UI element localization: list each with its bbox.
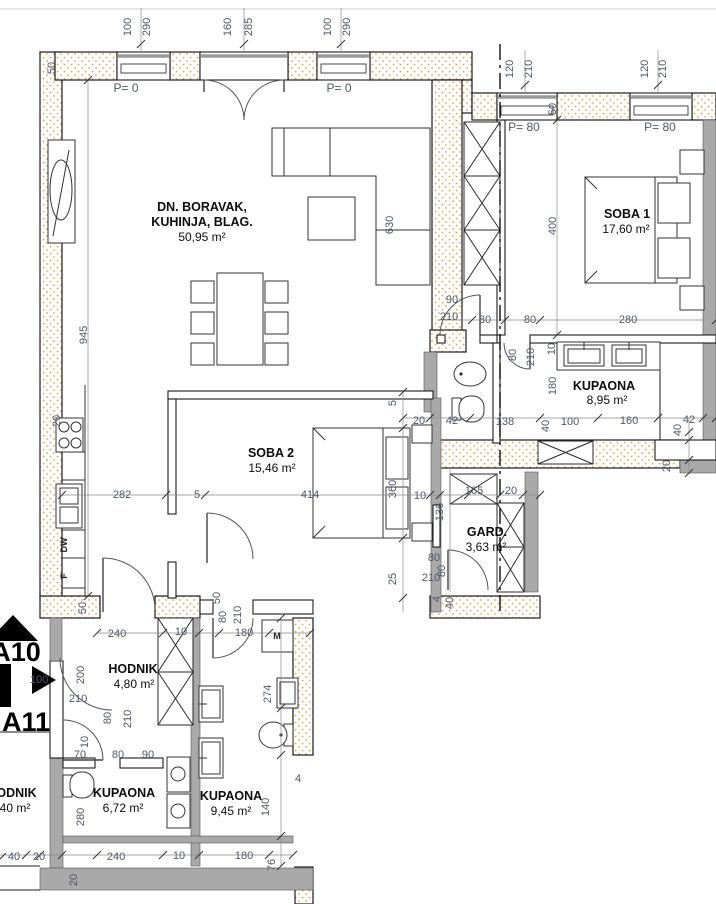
- dimension-label: 70: [74, 749, 86, 761]
- window-parapet-label: P= 80: [644, 120, 676, 134]
- dimension-label: 100: [561, 416, 579, 428]
- dimension-label: 180: [235, 627, 253, 639]
- dimension-label: 50: [77, 602, 89, 614]
- dimension-label: 80: [524, 314, 536, 326]
- dimension-label: 210: [122, 710, 134, 728]
- dimension-label: 290: [341, 18, 353, 36]
- dimension-label: 40: [672, 424, 684, 436]
- dimension-label: 10: [175, 626, 187, 638]
- dimension-label: 5: [194, 489, 200, 501]
- room-name-kupaona3: KUPAONA: [200, 789, 262, 803]
- dimension-label: 10: [414, 490, 426, 502]
- dimension-label: 180: [235, 850, 253, 862]
- dimension-label: 360: [387, 480, 399, 498]
- dimension-label: 20: [51, 415, 63, 427]
- dimension-label: 210: [69, 693, 87, 705]
- room-name-kupaona1: KUPAONA: [573, 379, 635, 393]
- dimension-label: 165: [465, 485, 483, 497]
- dimension-label: 160: [222, 18, 234, 36]
- room-name-hodnik1: HODNIK: [108, 662, 157, 676]
- dimension-label: 40: [444, 597, 456, 609]
- fixture-label: F: [59, 573, 69, 579]
- dimension-label: 414: [301, 489, 319, 501]
- plant: [48, 140, 75, 243]
- sink-kupaona2-top: [167, 757, 190, 792]
- dimension-label: 5: [387, 400, 399, 406]
- door-gard: [448, 550, 488, 590]
- dining-set: [191, 273, 288, 365]
- room-area-hodnik1: 4,80 m²: [114, 677, 155, 691]
- room-name-gard: GARD.: [467, 525, 507, 539]
- window-parapet-label: P= 0: [326, 81, 351, 95]
- dimension-label: 76: [266, 859, 278, 871]
- room-area-soba1: 17,60 m²: [602, 222, 649, 236]
- dimension-label: 100: [322, 18, 334, 36]
- window-living-right: [317, 52, 370, 80]
- dimension-label: 40: [540, 420, 552, 432]
- dimension-label: 210: [523, 60, 535, 78]
- fixture-label: M: [273, 631, 281, 641]
- dimension-label: 25: [387, 573, 399, 585]
- dimension-label: 280: [619, 314, 637, 326]
- bed-soba2: [313, 425, 432, 541]
- toilet-kupaona2: [63, 772, 94, 798]
- room-name-soba2: SOBA 2: [248, 446, 294, 460]
- dimension-label: 200: [75, 666, 87, 684]
- section-marker-a10: A10: [0, 637, 41, 667]
- stool-kupaona3: [277, 678, 298, 708]
- floor-plan-page: A10 A11 DN. BORAVAK, KUHINJA, BLAG. 50,9…: [0, 0, 716, 904]
- dimension-label: 20: [68, 874, 80, 886]
- room-area-living: 50,95 m²: [178, 230, 225, 244]
- room-area-soba2: 15,46 m²: [248, 461, 295, 475]
- room-name-soba1: SOBA 1: [604, 207, 650, 221]
- dimension-label: 90: [446, 294, 458, 306]
- room-area-hodnik2: 5,40 m²: [0, 801, 30, 815]
- window-soba1-right: [630, 93, 692, 120]
- dimension-label: 100: [30, 674, 48, 686]
- dimension-label: 80: [112, 749, 124, 761]
- window-living-left: [117, 52, 170, 80]
- dimension-label: 100: [122, 18, 134, 36]
- dimension-label: 210: [440, 311, 458, 323]
- sink-kupaona3-top: [199, 686, 223, 722]
- dimension-label: 400: [547, 217, 559, 235]
- kitchen-sink: [56, 484, 82, 528]
- dimension-label: 120: [639, 60, 651, 78]
- section-marker-a11: A11: [2, 707, 50, 737]
- dimension-label: 210: [232, 606, 244, 624]
- door-kitchen-hall: [103, 558, 155, 612]
- bidet-wc: [454, 362, 486, 386]
- dimension-label: 210: [525, 348, 537, 366]
- dimension-label: 20: [661, 460, 673, 472]
- dimension-label: 42: [446, 415, 458, 427]
- section-arrow-bar-icon: [0, 664, 11, 707]
- dimension-label: 80: [428, 552, 440, 564]
- room-name-hodnik2: HODNIK: [0, 786, 37, 800]
- dimension-label: 160: [620, 415, 638, 427]
- dimension-label: 140: [260, 798, 272, 816]
- dimension-label: 290: [141, 18, 153, 36]
- fixture-label: DW: [59, 537, 69, 552]
- dimension-label: 42: [683, 414, 695, 426]
- dimension-label: 210: [657, 60, 669, 78]
- dimension-label: 240: [108, 628, 126, 640]
- dimension-label: 136: [434, 503, 446, 521]
- dimension-label: 4: [295, 773, 301, 785]
- dimension-label: 20: [505, 485, 517, 497]
- dimension-label: 945: [78, 326, 90, 344]
- dimension-label: 80: [217, 611, 229, 623]
- dimension-label: 630: [384, 216, 396, 234]
- balcony-double-door: [204, 80, 284, 120]
- sink-kupaona3-bottom: [199, 738, 223, 778]
- dimension-label: 50: [211, 592, 223, 604]
- room-name-living-1: DN. BORAVAK,: [157, 200, 247, 214]
- dimension-label: 120: [504, 60, 516, 78]
- window-parapet-label: P= 80: [508, 120, 540, 134]
- dimension-label: 40: [8, 851, 20, 863]
- dimension-label: 10: [79, 736, 91, 748]
- dimension-label: 10: [173, 850, 185, 862]
- dimension-label: 20: [33, 851, 45, 863]
- dimension-label: 4: [431, 596, 443, 602]
- dimension-label: 90: [142, 749, 154, 761]
- dimension-label: 138: [496, 416, 514, 428]
- dimension-label: 280: [75, 808, 87, 826]
- dimension-label: 80: [479, 314, 491, 326]
- room-area-kupaona1: 8,95 m²: [587, 393, 628, 407]
- vanity-kupaona1: [557, 342, 660, 370]
- toilet-kupaona3: [259, 722, 293, 748]
- dimension-label: 20: [413, 415, 425, 427]
- dimension-label: 50: [46, 62, 58, 74]
- window-parapet-label: P= 0: [113, 81, 138, 95]
- dimension-label: 240: [107, 851, 125, 863]
- dimension-label: 282: [113, 489, 131, 501]
- dimension-label: 80: [507, 349, 519, 361]
- dimension-label: 274: [262, 685, 274, 703]
- door-soba2: [207, 513, 253, 563]
- dimension-label: 80: [102, 712, 114, 724]
- sink-kupaona2-bottom: [167, 794, 190, 828]
- floor-plan-canvas: A10 A11 DN. BORAVAK, KUHINJA, BLAG. 50,9…: [0, 0, 716, 904]
- balcony-door-opening: [200, 52, 288, 80]
- room-area-kupaona3: 9,45 m²: [211, 804, 252, 818]
- dimension-label: 10: [546, 343, 558, 355]
- room-name-living-2: KUHINJA, BLAG.: [151, 215, 252, 229]
- dimension-label: 285: [243, 18, 255, 36]
- room-name-kupaona2: KUPAONA: [93, 786, 155, 800]
- dimension-label: 50: [547, 103, 559, 115]
- coffee-table: [308, 197, 355, 240]
- dimension-label: 210: [422, 572, 440, 584]
- room-area-gard: 3,63 m²: [466, 540, 507, 554]
- room-area-kupaona2: 6,72 m²: [103, 801, 144, 815]
- dimension-label: 180: [547, 377, 559, 395]
